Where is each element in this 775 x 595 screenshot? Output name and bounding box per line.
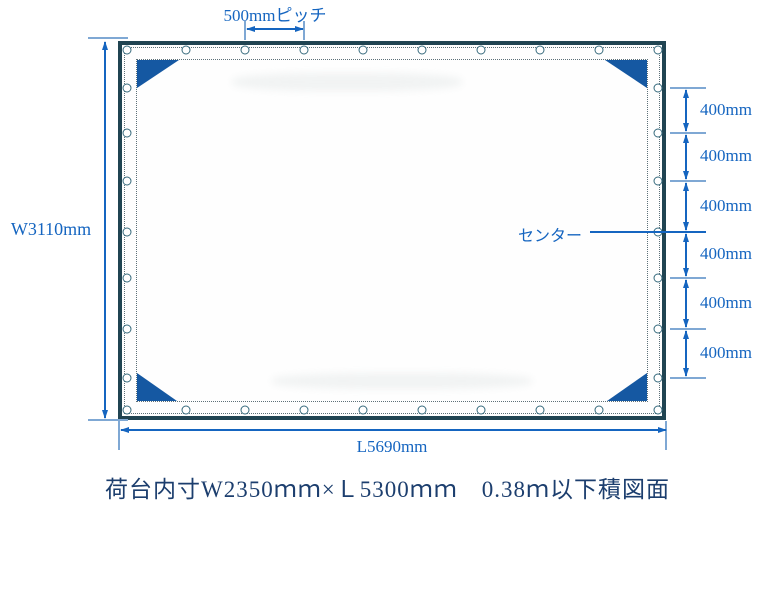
- width-extension-top: [88, 37, 128, 39]
- grommet: [654, 406, 663, 415]
- segment-tick: [670, 377, 706, 379]
- corner-patch-bottom-left: [137, 373, 177, 401]
- grommet: [123, 177, 132, 186]
- grommet: [654, 325, 663, 334]
- grommet: [477, 406, 486, 415]
- print-smudge: [232, 73, 462, 91]
- grommet: [300, 46, 309, 55]
- length-dimension-label: L5690mm: [118, 437, 666, 457]
- grommet: [359, 406, 368, 415]
- pitch-dimension-label: 500mmピッチ: [195, 1, 355, 26]
- corner-patch-top-right: [605, 60, 647, 88]
- segment-dimension-label: 400mm: [700, 146, 752, 166]
- grommet: [123, 84, 132, 93]
- grommet: [654, 177, 663, 186]
- segment-dimension-label: 400mm: [700, 196, 752, 216]
- print-smudge: [272, 373, 532, 389]
- length-dimension-arrow: [121, 429, 666, 431]
- grommet: [123, 325, 132, 334]
- grommet: [123, 46, 132, 55]
- grommet: [536, 406, 545, 415]
- grommet: [595, 46, 604, 55]
- segment-dimension-arrow: [685, 135, 687, 179]
- segment-dimension-label: 400mm: [700, 244, 752, 264]
- grommet: [300, 406, 309, 415]
- grommet: [418, 406, 427, 415]
- corner-patch-top-left: [137, 60, 179, 88]
- grommet: [654, 46, 663, 55]
- grommet: [182, 46, 191, 55]
- grommet: [359, 46, 368, 55]
- segment-dimension-arrow: [685, 183, 687, 230]
- width-dimension-arrow: [104, 42, 106, 418]
- corner-patch-bottom-right: [607, 373, 647, 401]
- tarp-sheet: [118, 41, 666, 420]
- width-extension-bottom: [88, 419, 128, 421]
- grommet: [477, 46, 486, 55]
- grommet: [182, 406, 191, 415]
- grommet: [654, 374, 663, 383]
- pitch-dimension-arrow: [247, 28, 303, 30]
- grommet: [123, 129, 132, 138]
- grommet: [654, 84, 663, 93]
- grommet: [418, 46, 427, 55]
- segment-dimension-label: 400mm: [700, 293, 752, 313]
- grommet: [123, 228, 132, 237]
- segment-dimension-label: 400mm: [700, 343, 752, 363]
- grommet: [123, 374, 132, 383]
- center-label: センター: [500, 222, 582, 246]
- grommet: [595, 406, 604, 415]
- segment-dimension-arrow: [685, 280, 687, 327]
- grommet: [536, 46, 545, 55]
- drawing-caption: 荷台内寸W2350ｍｍ×Ｌ5300ｍｍ 0.38ｍ以下積図面: [0, 470, 775, 504]
- segment-dimension-arrow: [685, 90, 687, 131]
- width-dimension-label: W3110mm: [2, 219, 100, 240]
- grommet: [654, 274, 663, 283]
- grommet: [241, 406, 250, 415]
- grommet: [654, 129, 663, 138]
- drawing-page: 500mmピッチ W3110mm L5690mm センター 400mm400mm…: [0, 0, 775, 595]
- grommet: [123, 406, 132, 415]
- segment-dimension-arrow: [685, 331, 687, 376]
- grommet: [241, 46, 250, 55]
- segment-dimension-arrow: [685, 234, 687, 276]
- segment-dimension-label: 400mm: [700, 100, 752, 120]
- grommet: [123, 274, 132, 283]
